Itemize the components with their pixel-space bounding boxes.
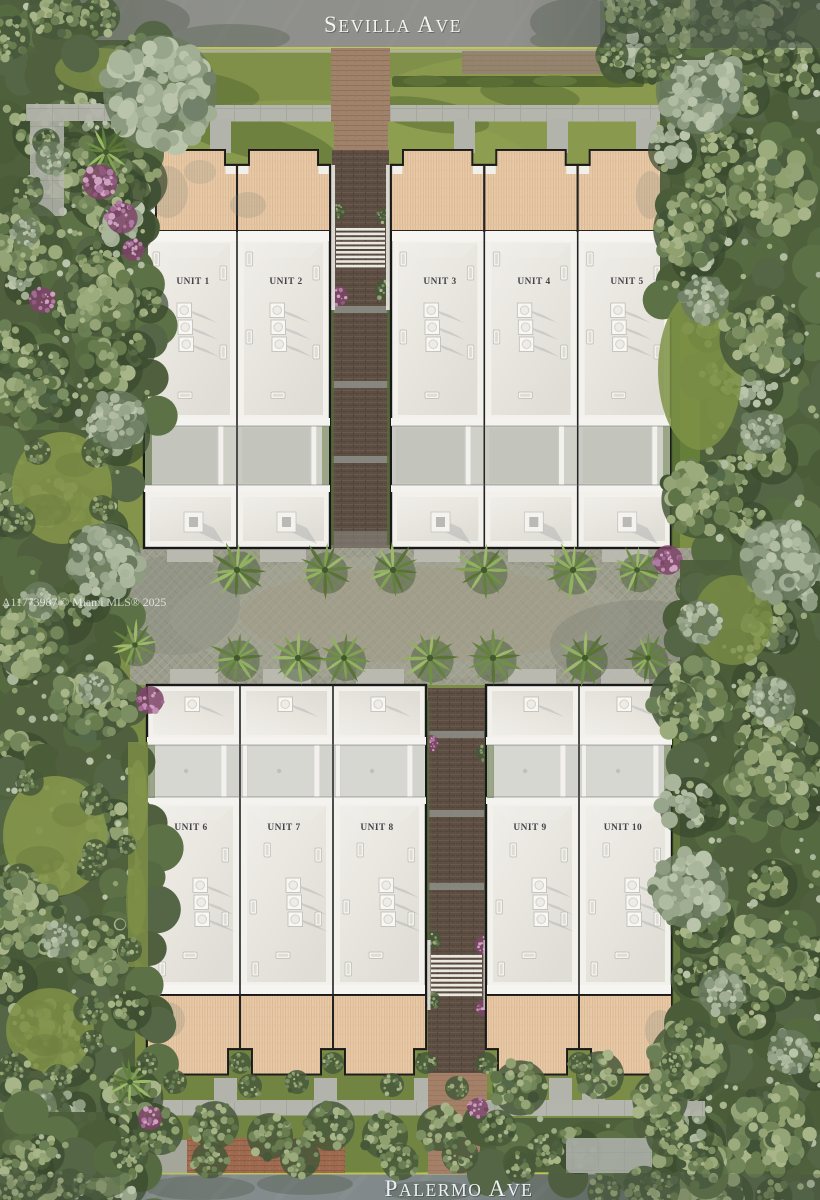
svg-text:UNIT 1: UNIT 1 xyxy=(176,277,209,287)
svg-text:UNIT 2: UNIT 2 xyxy=(269,277,302,287)
svg-text:UNIT 10: UNIT 10 xyxy=(604,823,643,833)
svg-text:UNIT 7: UNIT 7 xyxy=(267,823,300,833)
svg-text:UNIT 4: UNIT 4 xyxy=(517,277,550,287)
svg-text:UNIT 6: UNIT 6 xyxy=(174,823,207,833)
svg-text:UNIT 3: UNIT 3 xyxy=(423,277,456,287)
svg-text:UNIT 8: UNIT 8 xyxy=(360,823,393,833)
svg-text:UNIT 9: UNIT 9 xyxy=(513,823,546,833)
svg-text:UNIT 5: UNIT 5 xyxy=(610,277,643,287)
